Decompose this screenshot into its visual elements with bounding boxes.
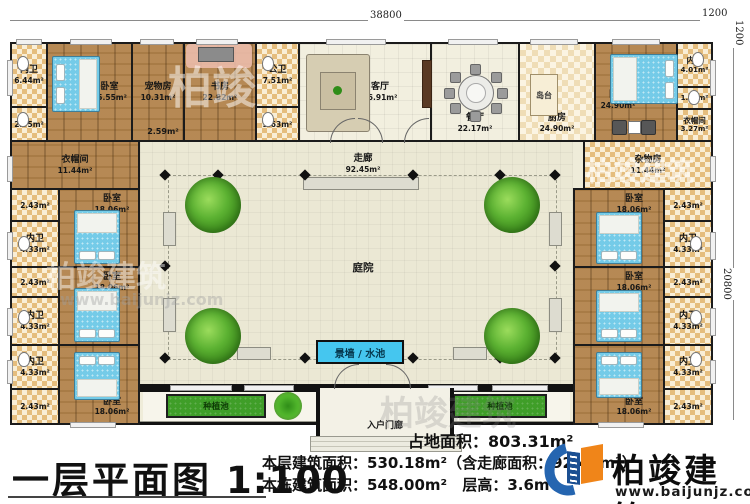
tv-cabinet <box>422 60 432 108</box>
room-name: 客厅 <box>371 82 389 92</box>
window <box>710 308 716 336</box>
room-name: 衣帽间 <box>61 155 88 165</box>
room-closet-l2: 2.43m² <box>10 266 60 298</box>
room-closet-r2: 2.43m² <box>663 266 713 298</box>
chair <box>641 120 656 135</box>
window <box>612 39 660 45</box>
toilet-icon <box>690 352 702 367</box>
company-website: www.baijunjz.com <box>615 484 750 500</box>
toilet-icon <box>690 310 702 325</box>
toilet-icon <box>688 90 700 105</box>
water-feature: 景墙 / 水池 <box>316 340 404 364</box>
room-area: 10.31m² <box>141 93 176 102</box>
chair <box>470 64 481 75</box>
room-bath-r2: 内卫4.33m² <box>663 296 713 346</box>
window <box>710 156 716 182</box>
company-logo-icon <box>545 440 607 500</box>
room-area: 11.44m² <box>631 166 666 175</box>
bench <box>549 212 562 246</box>
window <box>710 60 716 96</box>
bed <box>74 288 120 342</box>
dimension-line-right <box>733 48 734 420</box>
toilet-icon <box>18 310 30 325</box>
room-cloakroom-ne: 衣帽间3.27m² <box>676 108 713 142</box>
window <box>196 39 238 45</box>
window <box>326 39 386 45</box>
room-area: 2.43m² <box>673 278 703 287</box>
logo-orange-block <box>581 444 603 484</box>
window <box>7 308 13 336</box>
toilet-icon <box>262 56 274 71</box>
tree-icon <box>185 177 241 233</box>
room-public-bath-small: 3.63m² <box>255 106 300 142</box>
room-closet-r3: 2.43m² <box>663 388 713 425</box>
dimension-right-top-offset: 1200 <box>731 20 746 45</box>
room-bath-nw-small: 2.95m² <box>10 106 48 142</box>
room-name: 卧室 <box>625 397 643 407</box>
room-bath-r1: 内卫4.33m² <box>663 220 713 268</box>
window <box>7 60 13 96</box>
toilet-icon <box>692 52 704 67</box>
room-bath-nw: 内卫6.44m² <box>10 42 48 108</box>
bench <box>453 347 487 360</box>
palm-tree-icon <box>274 392 302 420</box>
toilet-icon <box>690 236 702 251</box>
title-underline <box>8 496 266 498</box>
room-area: 3.27m² <box>681 125 709 133</box>
window <box>710 232 716 260</box>
island-label: 岛台 <box>536 90 552 101</box>
window <box>7 360 13 384</box>
room-name: 卧室 <box>625 194 643 204</box>
window <box>70 39 112 45</box>
room-name: 卧室 <box>625 272 643 282</box>
dimension-line-top <box>10 20 700 21</box>
window <box>710 360 716 384</box>
chair <box>470 111 481 122</box>
room-name: 杂物房 <box>634 155 661 165</box>
chair <box>450 72 461 83</box>
room-name: 卧室 <box>103 194 121 204</box>
room-area: 18.06m² <box>617 407 652 416</box>
window <box>70 422 116 428</box>
room-closet-l3: 2.43m² <box>10 388 60 425</box>
chair <box>444 88 455 99</box>
plant-icon <box>333 86 342 95</box>
room-area: 24.90m² <box>540 124 575 133</box>
chair <box>491 103 502 114</box>
room-area: 7.51m² <box>263 76 293 85</box>
window <box>598 422 644 428</box>
building-area-value: 本栋建筑面积：548.00m² <box>262 476 447 494</box>
logo-blue-block <box>567 451 580 485</box>
chair <box>497 88 508 99</box>
room-pet-room: 宠物房10.31m² <box>131 42 185 142</box>
bed <box>596 290 642 342</box>
room-area: 22.17m² <box>458 124 493 133</box>
chair <box>612 120 627 135</box>
room-name: 卧室 <box>103 272 121 282</box>
dimension-top-right-offset: 1200 <box>700 8 729 19</box>
window <box>16 39 42 45</box>
dimension-top-width: 38800 <box>368 10 404 21</box>
toilet-icon <box>17 112 29 127</box>
room-name: 宠物房 <box>144 82 171 92</box>
room-area: 11.44m² <box>58 166 93 175</box>
dining-table <box>458 75 494 111</box>
dimension-right-height: 20800 <box>719 268 734 300</box>
planter-label: 种植池 <box>203 400 229 412</box>
room-area: 4.01m² <box>681 66 709 74</box>
chair <box>450 103 461 114</box>
bed <box>596 352 642 398</box>
side-table <box>628 121 641 134</box>
window <box>140 39 174 45</box>
window <box>530 39 578 45</box>
tree-icon <box>484 177 540 233</box>
planter-right: 种植池 <box>453 394 547 418</box>
room-area: 2.43m² <box>673 201 703 210</box>
room-public-bath: 公卫7.51m² <box>255 42 300 108</box>
room-area: 18.06m² <box>95 407 130 416</box>
bench <box>549 298 562 332</box>
bench <box>303 177 419 190</box>
bed <box>52 56 100 112</box>
room-area: 2.43m² <box>673 402 703 411</box>
room-area: 22.82m² <box>203 93 238 102</box>
room-name: 衣帽间 <box>683 116 706 125</box>
bed <box>74 352 120 400</box>
room-area: 6.44m² <box>14 76 44 85</box>
building-area-text: 本栋建筑面积：548.00m² 层高：3.6m <box>262 474 550 495</box>
toilet-icon <box>17 56 29 71</box>
window <box>244 385 294 391</box>
window <box>170 385 232 391</box>
bed <box>596 212 642 264</box>
room-name: 书房 <box>211 82 229 92</box>
room-area: 2.43m² <box>20 402 50 411</box>
room-area: 4.33m² <box>20 368 50 377</box>
room-bath-l2: 内卫4.33m² <box>10 296 60 346</box>
planter-left: 种植池 <box>166 394 266 418</box>
room-bath-r3: 内卫4.33m² <box>663 344 713 390</box>
toilet-icon <box>18 236 30 251</box>
toilet-icon <box>262 112 274 127</box>
toilet-icon <box>18 352 30 367</box>
room-closet-r1: 2.43m² <box>663 188 713 222</box>
floor-plan-canvas: 38800 1200 1200 20800 内卫6.44m² 2.95m² 卧室… <box>0 0 750 504</box>
room-area: 4.33m² <box>673 368 703 377</box>
room-name: 卧室 <box>100 82 118 92</box>
bench <box>237 347 271 360</box>
tree-icon <box>185 308 241 364</box>
room-bath-l3: 内卫4.33m² <box>10 344 60 390</box>
window <box>7 232 13 260</box>
bench <box>163 212 176 246</box>
bed <box>74 210 120 264</box>
bed <box>610 54 678 104</box>
desk <box>198 47 234 62</box>
window <box>448 39 498 45</box>
kitchen-island: 岛台 <box>530 74 558 116</box>
window <box>7 156 13 182</box>
tree-icon <box>484 308 540 364</box>
planter-label: 种植池 <box>487 400 513 412</box>
bench <box>163 298 176 332</box>
room-area: 2.43m² <box>20 278 50 287</box>
room-cloakroom-w: 衣帽间11.44m² <box>10 140 140 190</box>
window <box>492 385 548 391</box>
room-storage-e: 杂物房11.44m² <box>583 140 713 190</box>
water-feature-label: 景墙 / 水池 <box>335 345 386 360</box>
chair <box>491 72 502 83</box>
room-area: 2.43m² <box>20 201 50 210</box>
floor-height-value: 层高：3.6m <box>462 476 549 494</box>
room-closet-l1: 2.43m² <box>10 188 60 222</box>
